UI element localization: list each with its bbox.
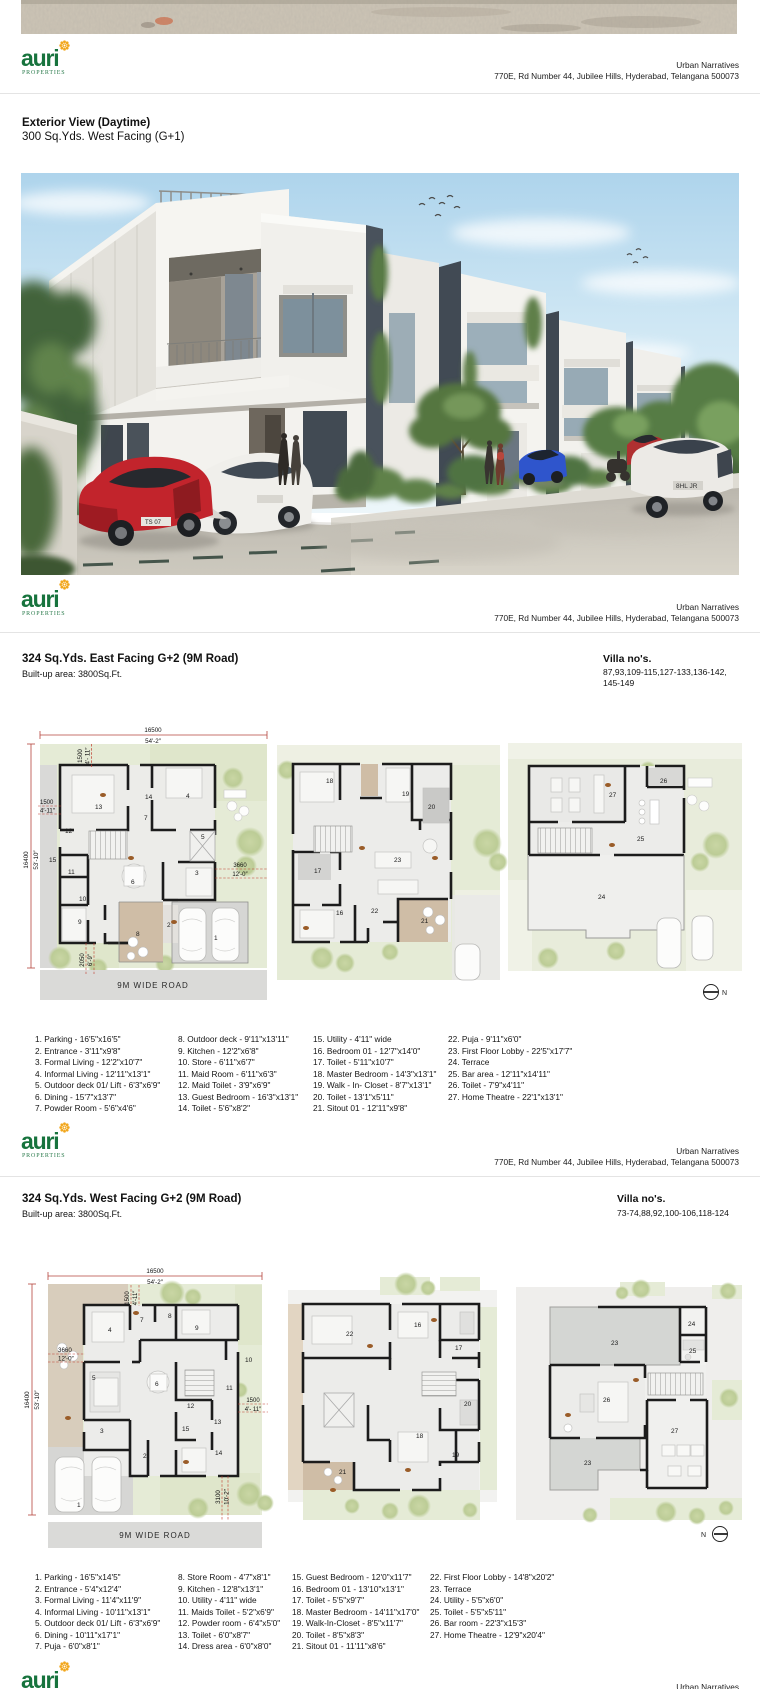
svg-text:17: 17 [455, 1345, 463, 1352]
svg-text:18: 18 [326, 778, 334, 785]
svg-text:3100: 3100 [215, 1490, 222, 1504]
svg-text:22: 22 [371, 908, 379, 915]
svg-text:4: 4 [108, 1327, 112, 1334]
svg-text:15: 15 [49, 857, 57, 864]
svg-text:1500: 1500 [77, 749, 84, 763]
svg-text:26: 26 [660, 778, 668, 785]
svg-text:20: 20 [428, 804, 436, 811]
svg-text:19: 19 [402, 791, 410, 798]
svg-text:16400: 16400 [24, 1391, 31, 1409]
svg-text:21: 21 [421, 918, 429, 925]
svg-text:8: 8 [168, 1313, 172, 1320]
svg-text:23: 23 [611, 1340, 619, 1347]
svg-text:14: 14 [215, 1450, 223, 1457]
svg-text:12: 12 [65, 828, 73, 835]
svg-text:2: 2 [167, 922, 171, 929]
svg-text:15: 15 [182, 1426, 190, 1433]
svg-text:7: 7 [140, 1317, 144, 1324]
svg-text:1500: 1500 [125, 1291, 131, 1305]
svg-text:3: 3 [100, 1428, 104, 1435]
svg-text:5: 5 [201, 834, 205, 841]
svg-text:16: 16 [414, 1322, 422, 1329]
svg-text:6: 6 [131, 879, 135, 886]
svg-text:23: 23 [584, 1460, 592, 1467]
svg-text:3660: 3660 [58, 1347, 72, 1354]
svg-text:1500: 1500 [40, 800, 54, 806]
svg-text:13: 13 [214, 1419, 222, 1426]
svg-text:12′-0″: 12′-0″ [58, 1356, 75, 1363]
svg-text:8HL JR: 8HL JR [676, 483, 698, 490]
svg-text:54′-2″: 54′-2″ [147, 1279, 164, 1286]
svg-text:25: 25 [637, 836, 645, 843]
svg-text:10: 10 [245, 1357, 253, 1364]
svg-text:4′- 11″: 4′- 11″ [245, 1407, 262, 1413]
svg-text:10′-2″: 10′-2″ [224, 1488, 231, 1505]
svg-text:1500: 1500 [246, 1398, 260, 1404]
svg-text:26: 26 [603, 1397, 611, 1404]
svg-text:6: 6 [155, 1381, 159, 1388]
svg-text:7: 7 [144, 815, 148, 822]
svg-text:53′-10″: 53′-10″ [34, 1390, 41, 1410]
svg-text:20: 20 [464, 1401, 472, 1408]
svg-text:5: 5 [92, 1375, 96, 1382]
svg-text:18: 18 [416, 1433, 424, 1440]
svg-text:14: 14 [145, 794, 153, 801]
svg-text:11: 11 [226, 1385, 233, 1392]
svg-text:16: 16 [336, 910, 344, 917]
svg-text:12′-0″: 12′-0″ [232, 872, 248, 878]
svg-text:6′-9″: 6′-9″ [88, 953, 94, 966]
svg-text:9: 9 [78, 919, 82, 926]
svg-text:4: 4 [186, 793, 190, 800]
svg-text:25: 25 [689, 1348, 697, 1355]
svg-text:1: 1 [77, 1502, 81, 1509]
svg-text:22: 22 [346, 1331, 354, 1338]
svg-text:9: 9 [195, 1325, 199, 1332]
svg-text:4′-11″: 4′-11″ [133, 1290, 139, 1306]
svg-text:27: 27 [609, 792, 617, 799]
svg-text:2050: 2050 [80, 953, 86, 967]
svg-text:19: 19 [452, 1452, 460, 1459]
svg-text:4′- 11″: 4′- 11″ [85, 747, 92, 765]
svg-text:21: 21 [339, 1469, 347, 1476]
svg-text:17: 17 [314, 868, 322, 875]
svg-text:N: N [722, 990, 727, 997]
svg-text:16400: 16400 [23, 851, 30, 869]
svg-text:9M WIDE ROAD: 9M WIDE ROAD [119, 1531, 191, 1540]
svg-text:N: N [701, 1532, 706, 1539]
svg-text:1: 1 [214, 935, 218, 942]
svg-text:16500: 16500 [146, 1268, 164, 1275]
svg-text:24: 24 [598, 894, 606, 901]
svg-text:4′-11″: 4′-11″ [40, 809, 56, 815]
svg-text:10: 10 [79, 896, 87, 903]
svg-text:16500: 16500 [144, 727, 162, 734]
svg-text:12: 12 [187, 1403, 195, 1410]
svg-text:53′-10″: 53′-10″ [33, 850, 40, 870]
svg-text:2: 2 [143, 1453, 147, 1460]
svg-text:3660: 3660 [233, 863, 247, 869]
svg-text:8: 8 [136, 931, 140, 938]
svg-text:13: 13 [95, 804, 103, 811]
svg-text:23: 23 [394, 857, 402, 864]
svg-text:TS 07: TS 07 [145, 520, 162, 526]
svg-text:27: 27 [671, 1428, 679, 1435]
svg-text:24: 24 [688, 1321, 696, 1328]
svg-text:9M WIDE ROAD: 9M WIDE ROAD [117, 981, 189, 990]
svg-text:54′-2″: 54′-2″ [145, 738, 162, 745]
svg-text:11: 11 [68, 869, 75, 876]
svg-text:3: 3 [195, 870, 199, 877]
